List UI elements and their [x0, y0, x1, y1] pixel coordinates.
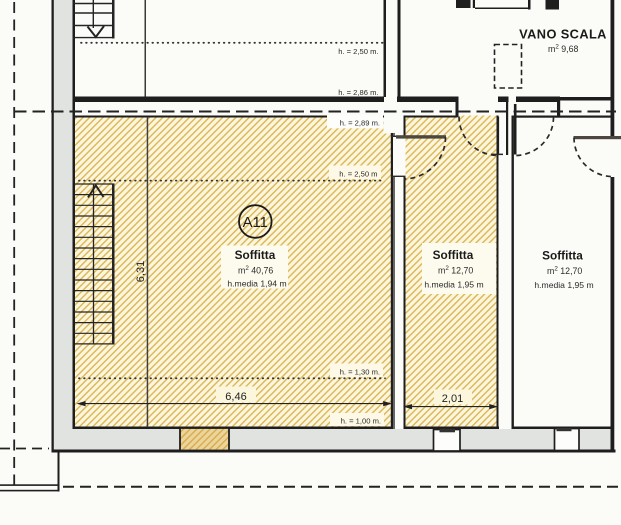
- svg-text:h. = 2,86 m.: h. = 2,86 m.: [338, 88, 378, 97]
- svg-text:Soffitta: Soffitta: [542, 248, 583, 262]
- svg-text:h.media 1,94 m: h.media 1,94 m: [227, 278, 286, 288]
- svg-text:h. = 1,00 m.: h. = 1,00 m.: [341, 417, 381, 426]
- svg-text:m2 9,68: m2 9,68: [548, 44, 579, 55]
- svg-text:2,01: 2,01: [442, 393, 463, 405]
- svg-text:Soffitta: Soffitta: [433, 248, 474, 262]
- svg-text:m2 12,70: m2 12,70: [547, 265, 582, 276]
- svg-text:h. = 2,50 m: h. = 2,50 m: [339, 170, 377, 179]
- svg-text:h. = 1,30 m.: h. = 1,30 m.: [340, 368, 380, 377]
- svg-text:VANO SCALA: VANO SCALA: [519, 27, 607, 42]
- svg-text:h.media 1,95 m: h.media 1,95 m: [424, 279, 483, 289]
- svg-text:6,31: 6,31: [135, 261, 147, 282]
- svg-text:6,46: 6,46: [225, 391, 246, 403]
- svg-text:h. = 2,89 m.: h. = 2,89 m.: [340, 119, 380, 128]
- svg-text:m2 40,76: m2 40,76: [238, 265, 273, 276]
- svg-text:A11: A11: [243, 215, 268, 231]
- svg-text:Soffitta: Soffitta: [235, 248, 276, 262]
- svg-text:h.media 1,95 m: h.media 1,95 m: [534, 280, 593, 290]
- svg-text:h. = 2,50 m.: h. = 2,50 m.: [338, 47, 378, 56]
- svg-text:m2 12,70: m2 12,70: [438, 265, 473, 276]
